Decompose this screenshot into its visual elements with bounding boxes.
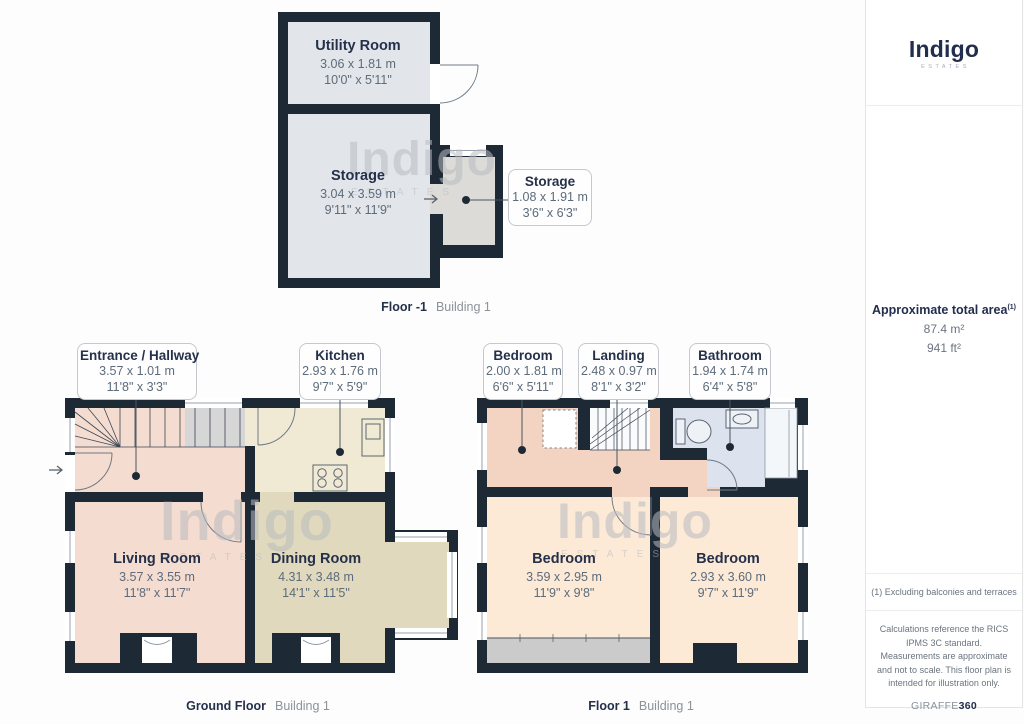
callout-storage: Storage 1.08 x 1.91 m 3'6" x 6'3": [508, 169, 592, 226]
sink-icon: [362, 419, 384, 456]
footnote-marker: (1): [1007, 304, 1016, 311]
total-area-m2: 87.4 m²: [866, 322, 1022, 336]
callout-bathroom: Bathroom 1.94 x 1.74 m 6'4" x 5'8": [689, 343, 771, 400]
floor-caption-1: Floor 1Building 1: [588, 699, 694, 713]
callout-bedroom: Bedroom 2.00 x 1.81 m 6'6" x 5'11": [483, 343, 563, 400]
callout-landing: Landing 2.48 x 0.97 m 8'1" x 3'2": [578, 343, 659, 400]
room-label-storage: Storage 3.04 x 3.59 m 9'11" x 11'9": [320, 168, 396, 219]
floor-caption-ground: Ground FloorBuilding 1: [186, 699, 330, 713]
floor-caption-minus-1: Floor -1Building 1: [381, 300, 491, 314]
disclaimer-text: Calculations reference the RICS IPMS 3C …: [875, 623, 1013, 691]
room-label-dining-room: Dining Room 4.31 x 3.48 m 14'1" x 11'5": [271, 551, 361, 602]
footnote: (1) Excluding balconies and terraces: [866, 573, 1022, 611]
giraffe360-logo: GIRAFFE360: [866, 700, 1022, 712]
brand-logo-sub: ESTATES: [921, 64, 970, 70]
room-label-bedroom-right: Bedroom 2.93 x 3.60 m 9'7" x 11'9": [690, 551, 766, 602]
room-label-living-room: Living Room 3.57 x 3.55 m 11'8" x 11'7": [113, 551, 201, 602]
floor-1-plan: [477, 390, 808, 673]
basin-icon: [726, 410, 758, 428]
total-area-title: Approximate total area(1): [866, 303, 1022, 317]
ground-floor-plan: [49, 390, 458, 673]
brand-logo: Indigo ESTATES: [866, 0, 1022, 106]
total-area-ft2: 941 ft²: [866, 341, 1022, 355]
room-label-bedroom-left: Bedroom 3.59 x 2.95 m 11'9" x 9'8": [526, 551, 602, 602]
total-area: Approximate total area(1) 87.4 m² 941 ft…: [866, 303, 1022, 355]
disclaimer-block: Calculations reference the RICS IPMS 3C …: [866, 611, 1022, 712]
toilet-icon: [676, 419, 711, 444]
entry-arrow-icon: [49, 466, 62, 474]
info-panel: Indigo ESTATES Approximate total area(1)…: [865, 0, 1023, 708]
callout-entrance-hallway: Entrance / Hallway 3.57 x 1.01 m 11'8" x…: [77, 343, 197, 400]
room-label-utility-room: Utility Room 3.06 x 1.81 m 10'0" x 5'11": [315, 38, 400, 89]
callout-kitchen: Kitchen 2.93 x 1.76 m 9'7" x 5'9": [299, 343, 381, 400]
brand-logo-word: Indigo: [909, 36, 979, 63]
stove-icon: [313, 465, 347, 491]
wardrobe-icon: [543, 410, 576, 448]
